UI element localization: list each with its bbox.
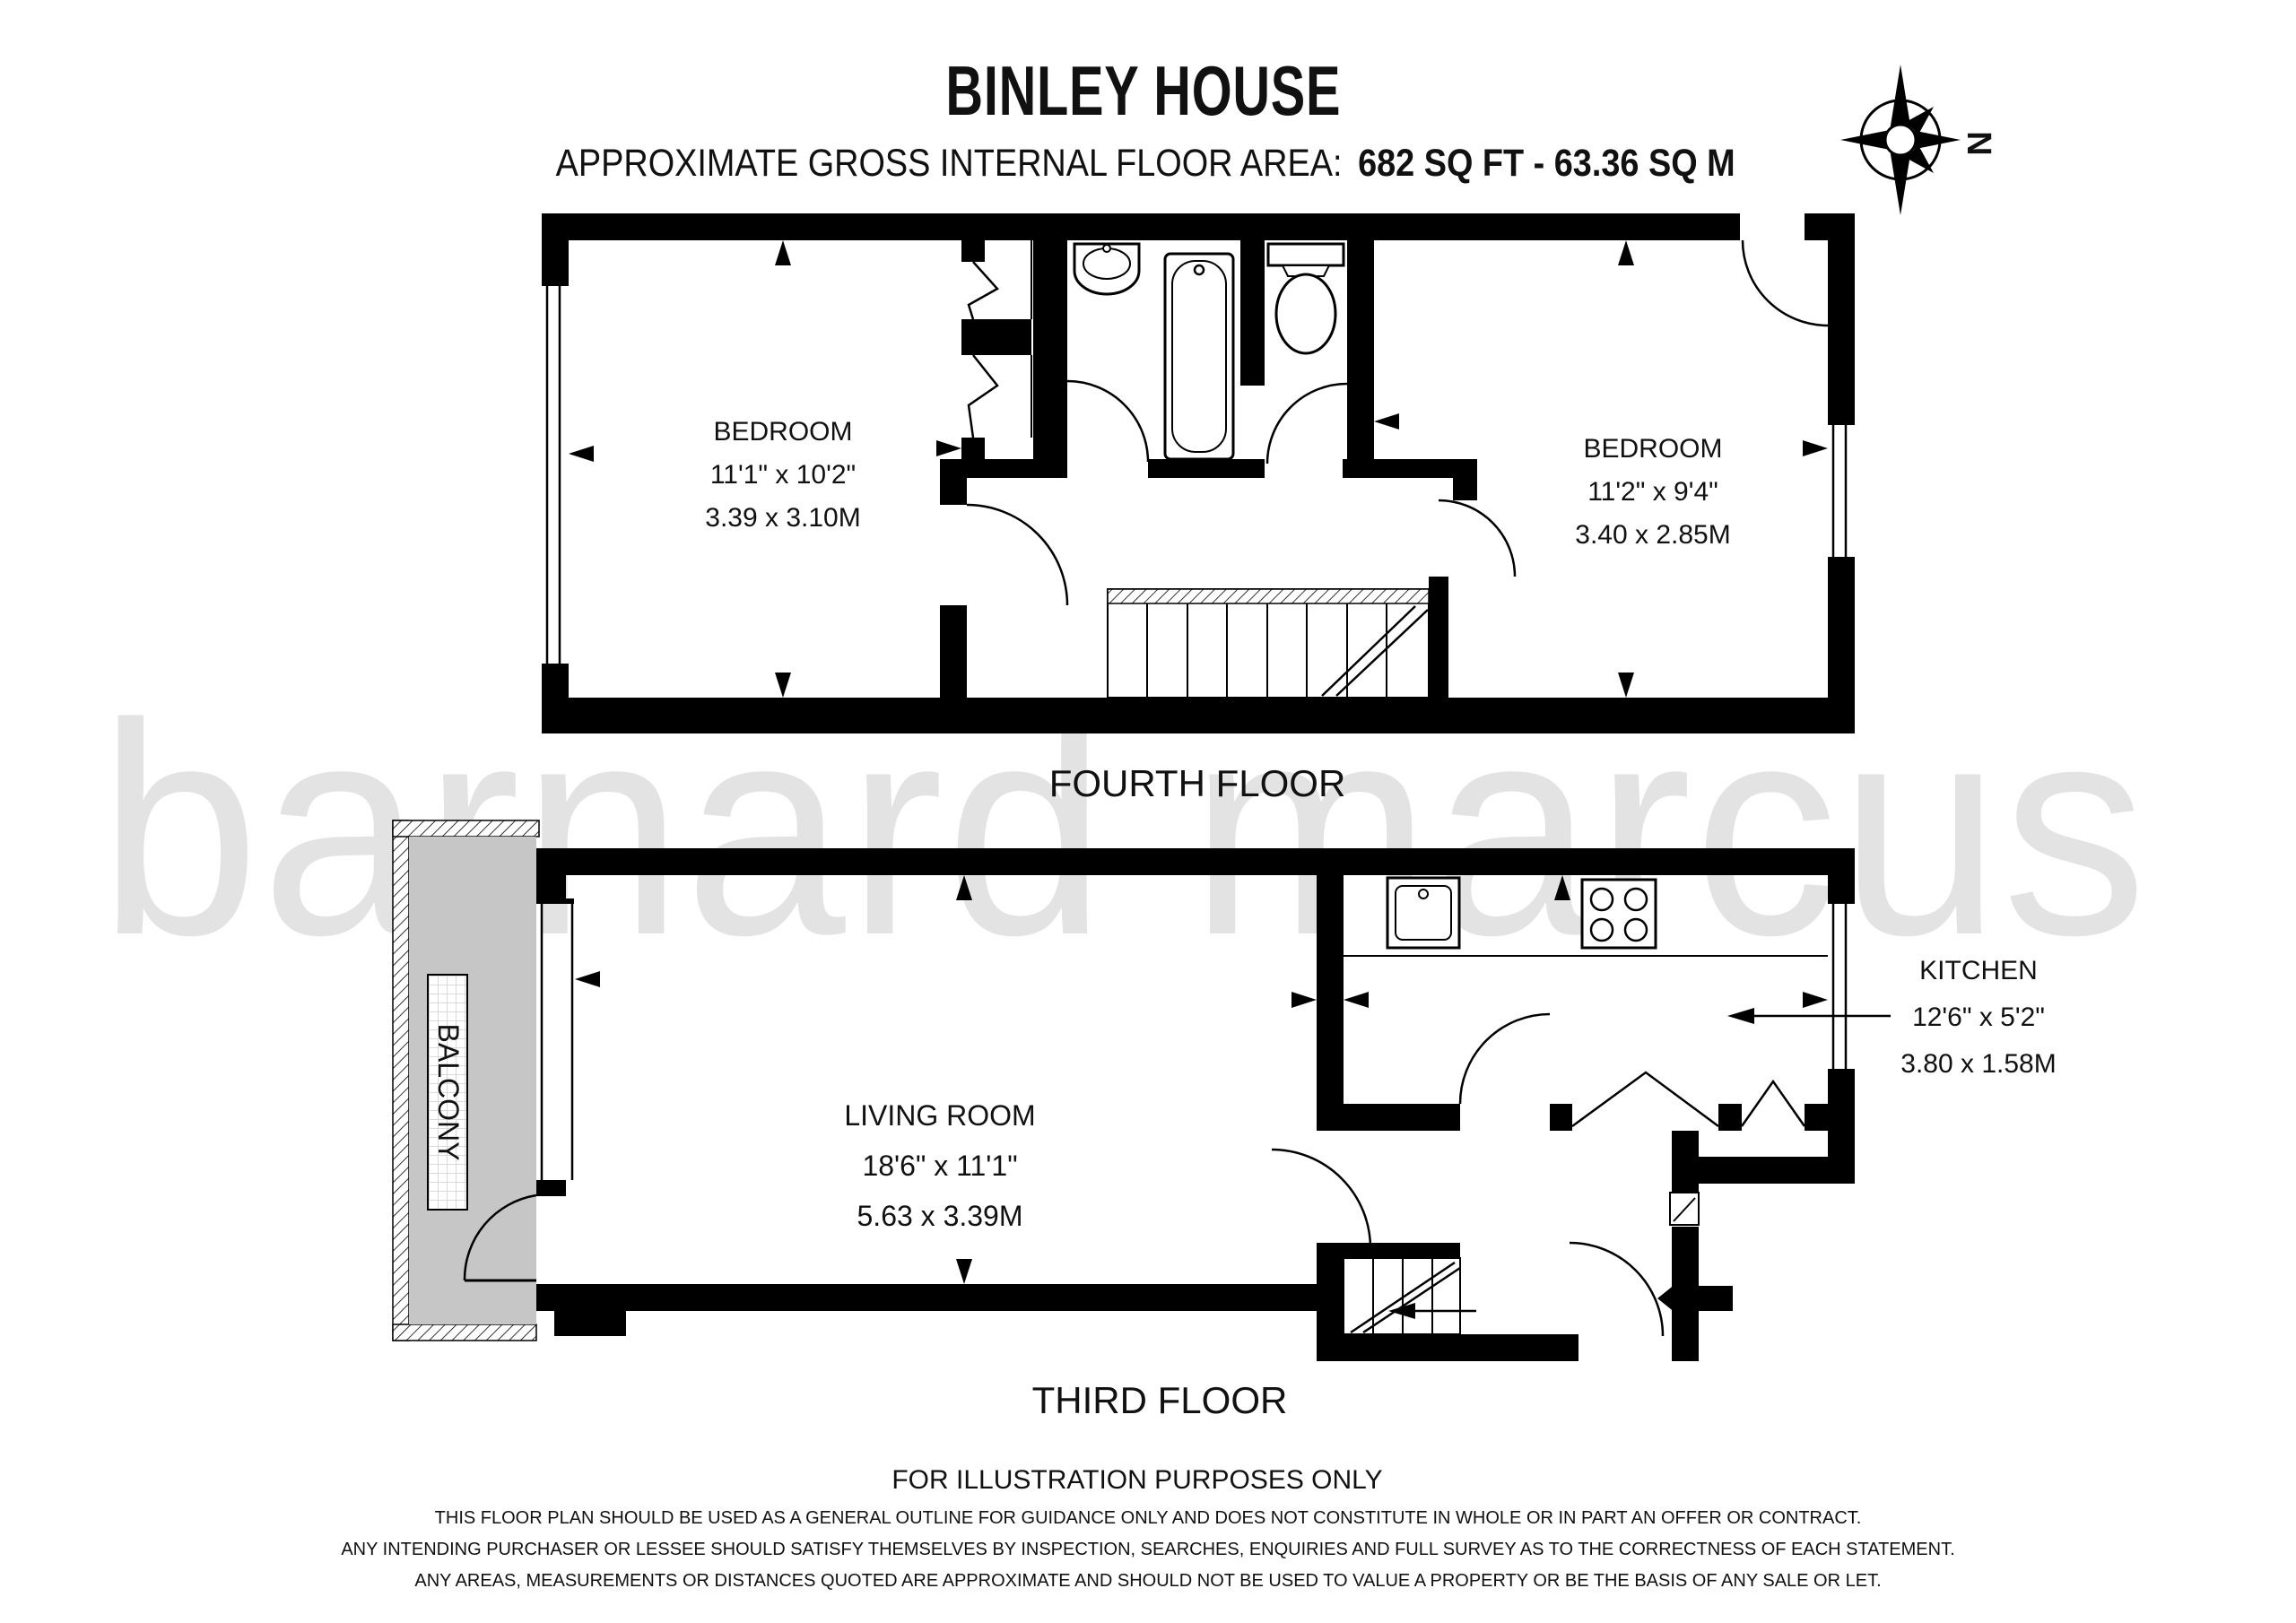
area-value: 682 SQ FT - 63.36 SQ M: [1358, 142, 1735, 185]
arrow-left-icon: [1344, 992, 1369, 1008]
kitchen-tap-icon: [1419, 890, 1428, 898]
disclaimer-line: ANY AREAS, MEASUREMENTS OR DISTANCES QUO…: [161, 1566, 2135, 1597]
staircase-upper: [1108, 589, 1429, 698]
page-title: BINLEY HOUSE: [695, 50, 1592, 132]
floor-area-subtitle: APPROXIMATE GROSS INTERNAL FLOOR AREA:68…: [248, 142, 2042, 186]
compass-rose: [1840, 65, 1961, 215]
arrow-up-icon: [1554, 875, 1570, 900]
toilet-cistern-icon: [1268, 244, 1344, 265]
room-name: KITCHEN: [1817, 948, 2140, 994]
staircase-lower: [1344, 1258, 1476, 1334]
living-room-door-arc: [1272, 1150, 1370, 1248]
room-dims-imperial: 11'1" x 10'2": [604, 454, 962, 497]
room-dims-metric: 3.39 x 3.10M: [604, 497, 962, 540]
arrow-up-icon: [775, 240, 791, 265]
wc-door-arc: [1267, 384, 1347, 464]
room-name: LIVING ROOM: [734, 1090, 1146, 1141]
area-label: APPROXIMATE GROSS INTERNAL FLOOR AREA:: [555, 142, 1342, 185]
title-text: BINLEY HOUSE: [946, 50, 1342, 132]
room-dims-metric: 3.40 x 2.85M: [1474, 514, 1832, 557]
arrow-up-icon: [956, 875, 972, 900]
third-floor-title: THIRD FLOOR: [891, 1379, 1429, 1422]
balcony-label: BALCONY: [427, 974, 468, 1211]
arrow-up-icon: [1618, 240, 1634, 265]
toilet-bowl-icon: [1276, 274, 1335, 353]
disclaimer-line: ANY INTENDING PURCHASER OR LESSEE SHOULD…: [161, 1534, 2135, 1566]
living-room-label: LIVING ROOM 18'6" x 11'1" 5.63 x 3.39M: [734, 1090, 1146, 1241]
fourth-floor-title: FOURTH FLOOR: [928, 762, 1466, 805]
bedroom1-door-arc: [967, 505, 1067, 605]
bathroom-fixtures: [1074, 244, 1344, 459]
room-dims-imperial: 12'6" x 5'2": [1817, 994, 2140, 1041]
cupboard-doors: [1742, 1081, 1805, 1126]
illustration-note: FOR ILLUSTRATION PURPOSES ONLY: [734, 1465, 1541, 1496]
room-dims-metric: 5.63 x 3.39M: [734, 1191, 1146, 1241]
kitchen-fixtures: [1344, 878, 1828, 956]
arrow-down-icon: [775, 673, 791, 698]
room-name: BEDROOM: [1474, 428, 1832, 471]
floorplan-page: barnard marcus: [0, 0, 2296, 1623]
compass-north-label: N: [1961, 126, 1996, 161]
balcony-hatch-edge: [393, 820, 409, 1341]
disclaimer-line: THIS FLOOR PLAN SHOULD BE USED AS A GENE…: [161, 1503, 2135, 1534]
room-dims-imperial: 18'6" x 11'1": [734, 1141, 1146, 1191]
sink-basin-icon: [1083, 248, 1130, 279]
arrow-down-icon: [1618, 673, 1634, 698]
arrow-down-icon: [956, 1259, 972, 1284]
sink-tap-icon: [1103, 245, 1110, 252]
room-dims-metric: 3.80 x 1.58M: [1817, 1041, 2140, 1088]
arrow-right-icon: [1291, 992, 1317, 1008]
bedroom1-label: BEDROOM 11'1" x 10'2" 3.39 x 3.10M: [604, 411, 962, 540]
entrance-door-arc: [1570, 1243, 1663, 1336]
window-balcony-living: [536, 898, 574, 1180]
kitchen-label: KITCHEN 12'6" x 5'2" 3.80 x 1.58M: [1817, 948, 2140, 1088]
room-name: BEDROOM: [604, 411, 962, 454]
room-dims-imperial: 11'2" x 9'4": [1474, 471, 1832, 514]
cupboard-doors: [1572, 1072, 1718, 1126]
arrow-left-icon: [575, 971, 600, 987]
arrow-left-icon: [1374, 413, 1399, 430]
disclaimer-block: THIS FLOOR PLAN SHOULD BE USED AS A GENE…: [161, 1503, 2135, 1597]
bath-tap-icon: [1195, 265, 1204, 274]
arrow-left-icon: [569, 446, 594, 462]
leader-arrow-icon: [1727, 1008, 1754, 1024]
bedroom2-entry-door-arc: [1743, 240, 1828, 325]
bedroom2-label: BEDROOM 11'2" x 9'4" 3.40 x 2.85M: [1474, 428, 1832, 557]
bathroom-door-arc: [1067, 381, 1148, 462]
window-left-bedroom1: [542, 281, 569, 669]
bathtub-icon: [1165, 254, 1233, 459]
kitchen-door-arc: [1460, 1014, 1550, 1104]
